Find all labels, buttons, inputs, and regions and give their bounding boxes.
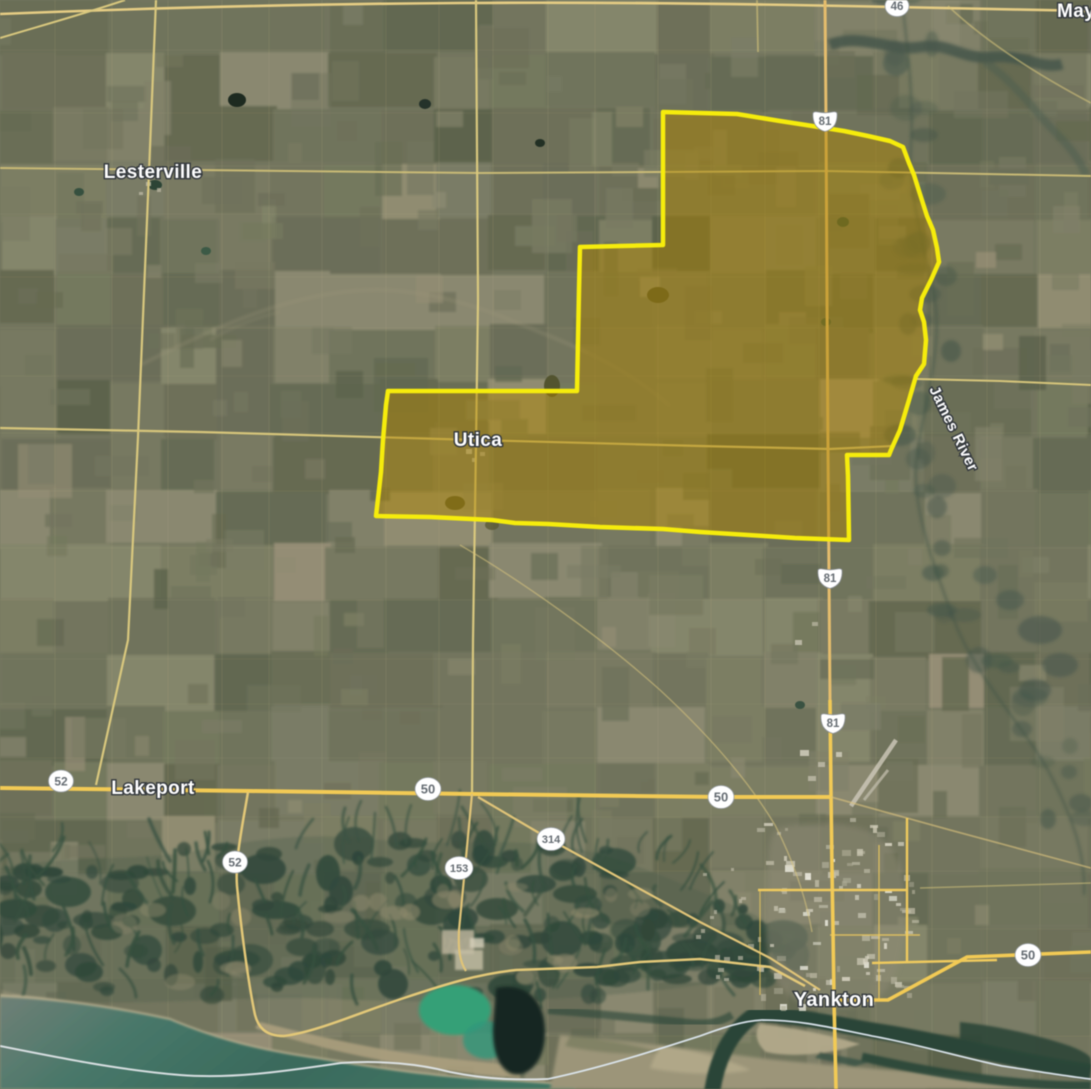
svg-text:50: 50	[1021, 948, 1035, 963]
svg-text:Utica: Utica	[454, 430, 502, 451]
svg-text:50: 50	[421, 782, 435, 797]
svg-text:May: May	[1057, 1, 1091, 22]
svg-text:Lesterville: Lesterville	[104, 162, 202, 183]
svg-text:Lakeport: Lakeport	[111, 778, 195, 799]
svg-text:Yankton: Yankton	[794, 989, 875, 1011]
svg-text:314: 314	[542, 834, 561, 846]
svg-text:50: 50	[714, 790, 728, 805]
svg-text:46: 46	[891, 1, 904, 13]
svg-text:81: 81	[819, 116, 832, 128]
svg-text:52: 52	[228, 855, 242, 869]
svg-text:81: 81	[827, 718, 840, 730]
svg-text:153: 153	[450, 863, 468, 875]
svg-text:81: 81	[824, 573, 837, 585]
svg-text:52: 52	[54, 774, 68, 788]
